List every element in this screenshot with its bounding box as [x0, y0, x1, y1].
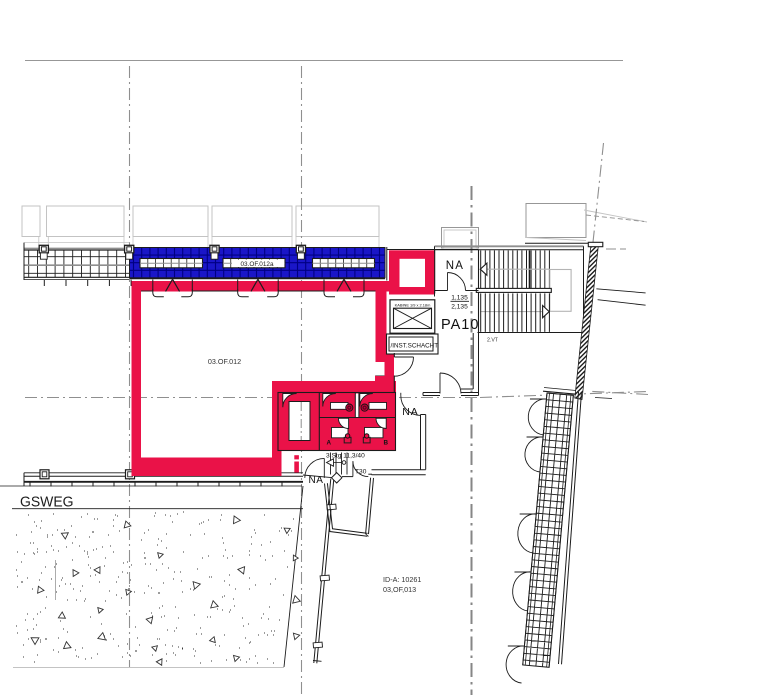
svg-text:ID-A: 10261: ID-A: 10261 [383, 575, 421, 584]
svg-text:3 Stg 11,3/40: 3 Stg 11,3/40 [326, 453, 365, 460]
svg-text:/INST.SCHACHT: /INST.SCHACHT [391, 343, 439, 350]
svg-text:2,135: 2,135 [451, 304, 468, 311]
svg-text:NA: NA [402, 406, 419, 418]
svg-text:T30: T30 [355, 469, 367, 476]
svg-text:KABINE 1/9 x 2.18m: KABINE 1/9 x 2.18m [395, 303, 431, 308]
svg-text:PA10: PA10 [441, 317, 479, 333]
svg-text:NA: NA [446, 260, 464, 272]
svg-text:03,OF,013: 03,OF,013 [383, 585, 416, 594]
svg-text:03.OF.012: 03.OF.012 [208, 357, 241, 366]
svg-text:GSWEG: GSWEG [20, 494, 74, 511]
svg-text:03.OF.012a: 03.OF.012a [240, 261, 273, 268]
svg-text:1,135: 1,135 [451, 295, 468, 302]
svg-text:A: A [327, 440, 332, 447]
svg-text:B: B [384, 440, 389, 447]
svg-text:2.VT: 2.VT [487, 338, 499, 344]
